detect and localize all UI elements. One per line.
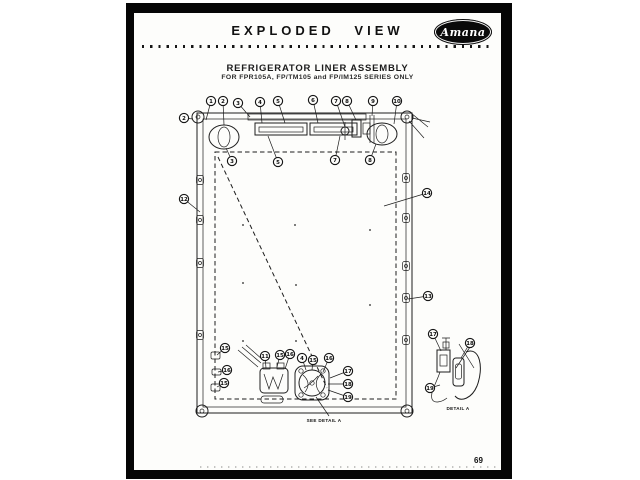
callout-number: 16: [325, 356, 333, 362]
callout-number: 15: [220, 381, 228, 387]
callout-number: 12: [180, 197, 188, 203]
callout-number: 4: [258, 100, 262, 106]
callout-number: 17: [344, 369, 352, 375]
callout-number: 15: [221, 346, 229, 352]
detail-a-caption: DETAIL A: [447, 406, 470, 411]
callout-number: 1: [209, 99, 213, 105]
see-detail-caption: SEE DETAIL A: [307, 418, 342, 423]
callout-number: 14: [423, 191, 431, 197]
fan-assembly: [295, 366, 329, 416]
hatch-lines: [238, 345, 263, 367]
callout-number: 5: [276, 160, 280, 166]
detail-a-inset: [432, 338, 481, 402]
callout-number: 18: [466, 341, 474, 347]
callout-number: 7: [334, 99, 338, 105]
callout-number: 15: [309, 358, 317, 364]
callout-number: 16: [286, 352, 294, 358]
callouts-layer: 1234567891023578121413151615111516415161…: [179, 95, 474, 401]
callout-number: 7: [333, 158, 337, 164]
exploded-view-diagram: 1234567891023578121413151615111516415161…: [0, 0, 640, 480]
callout-number: 8: [345, 99, 349, 105]
callout-number: 18: [344, 382, 352, 388]
scanned-manual-page: EXPLODED VIEW Amana REFRIGERATOR LINER A…: [0, 0, 640, 480]
callout-number: 6: [311, 98, 315, 104]
callout-number: 4: [300, 356, 304, 362]
shelf-support-clips: [197, 174, 410, 345]
callout-number: 16: [223, 368, 231, 374]
callout-number: 13: [424, 294, 432, 300]
interior-specks: [242, 224, 371, 342]
callout-number: 3: [230, 159, 234, 165]
liner-dashed-outline: [215, 152, 396, 399]
callout-number: 11: [261, 354, 269, 360]
callout-number: 8: [368, 158, 372, 164]
callout-number: 2: [221, 99, 225, 105]
callout-number: 2: [182, 116, 186, 122]
callout-number: 3: [236, 101, 240, 107]
callout-number: 5: [276, 99, 280, 105]
callout-number: 10: [393, 99, 401, 105]
callout-number: 9: [371, 99, 375, 105]
callout-number: 19: [344, 395, 352, 401]
callout-number: 17: [429, 332, 437, 338]
callout-number: 19: [426, 386, 434, 392]
callout-number: 15: [276, 353, 284, 359]
callout-leader: [384, 193, 427, 206]
